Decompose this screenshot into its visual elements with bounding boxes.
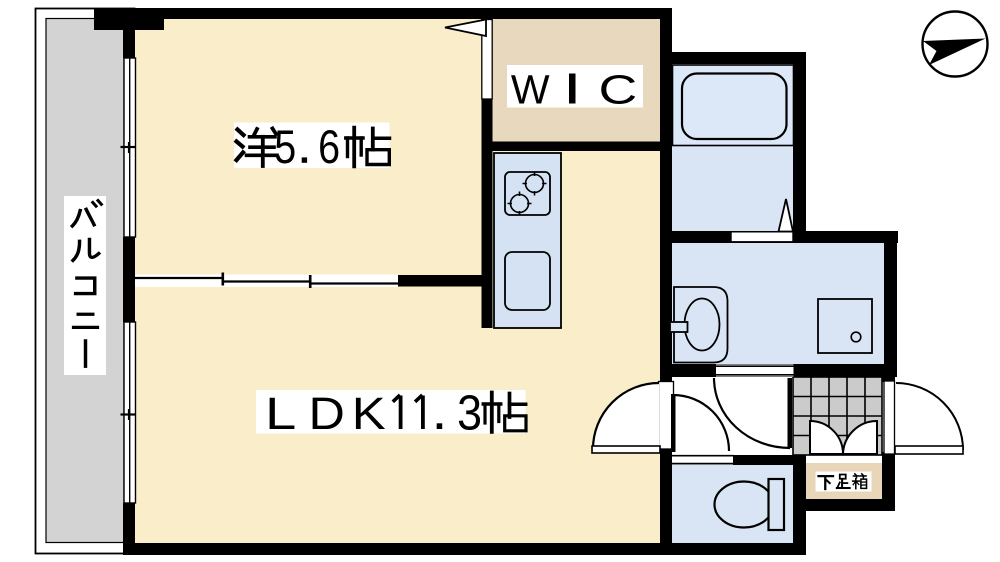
svg-text:W: W [511,67,550,113]
svg-text:6: 6 [318,122,340,174]
svg-text:C: C [599,67,638,112]
svg-text:L: L [265,388,296,438]
svg-text:K: K [352,390,386,440]
svg-text:5: 5 [274,122,296,174]
svg-text:D: D [309,389,345,439]
svg-text:3: 3 [457,386,482,440]
